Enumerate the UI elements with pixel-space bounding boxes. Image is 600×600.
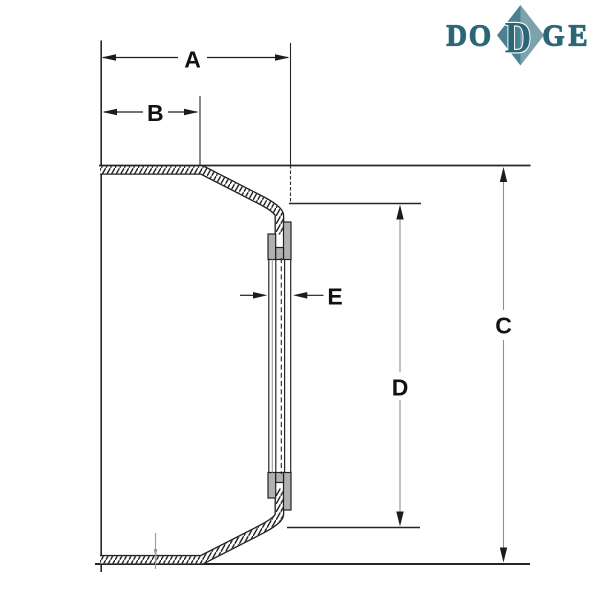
svg-text:E: E [327,284,342,310]
svg-text:A: A [184,47,201,73]
svg-text:C: C [495,313,512,339]
svg-text:E: E [568,18,587,52]
svg-text:B: B [147,100,164,126]
svg-text:G: G [542,18,564,52]
svg-text:D: D [446,18,467,52]
svg-text:D: D [392,374,409,400]
svg-text:D: D [505,13,532,62]
svg-text:O: O [469,18,491,52]
